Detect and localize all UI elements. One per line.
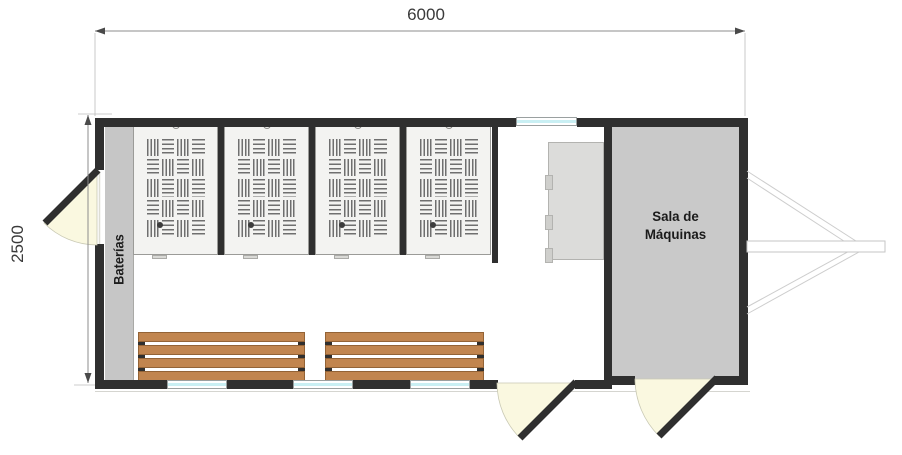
window-glass [294, 383, 352, 386]
hatch-block [283, 139, 295, 156]
hatch-block [253, 200, 265, 217]
hatch-block [147, 200, 159, 217]
hitch-bottom-member-line [747, 249, 853, 307]
hatch-block [329, 159, 341, 176]
bottom-door1-leaf [520, 382, 576, 438]
dimension-arrow-up [85, 115, 92, 125]
hatch-block [465, 179, 477, 196]
hatch-block [450, 200, 462, 217]
window [410, 380, 470, 389]
hatch-block [253, 220, 265, 237]
hatch-block [162, 179, 174, 196]
window [167, 380, 227, 389]
hatch-block [162, 220, 174, 237]
wall-bottom-segment [612, 376, 635, 385]
hatch-block [283, 179, 295, 196]
hatch-block [435, 159, 447, 176]
hatch-block [253, 139, 265, 156]
hatch-block [192, 179, 204, 196]
locker-unit [224, 124, 309, 255]
hatch-block [253, 159, 265, 176]
machine-room: Sala de Máquinas [612, 127, 739, 380]
locker-divider-wall [400, 124, 406, 255]
hatch-block [420, 159, 432, 176]
bench-slat [138, 358, 305, 368]
hatch-block [147, 179, 159, 196]
hatch-block [450, 179, 462, 196]
hatch-block [465, 220, 477, 237]
hatch-block [435, 200, 447, 217]
cabinet [548, 142, 604, 260]
hatch-block [162, 139, 174, 156]
hatch-block [268, 220, 280, 237]
hatch-block [359, 200, 371, 217]
locker-foot [243, 255, 258, 259]
left-door-leaf [45, 170, 98, 223]
dimension-width-label: 6000 [392, 5, 460, 25]
machine-room-label: Sala de Máquinas [615, 207, 736, 243]
hatch-block [359, 220, 371, 237]
hatch-block [450, 139, 462, 156]
hatch-block [374, 220, 386, 237]
window-glass [168, 383, 226, 386]
wall-bottom-segment [95, 380, 167, 389]
hatch-block [192, 139, 204, 156]
hatch-block [374, 179, 386, 196]
hatch-block [374, 139, 386, 156]
hatch-block [192, 220, 204, 237]
hatch-block [238, 159, 250, 176]
wall-left-lower-segment [95, 244, 104, 389]
hatch-block [283, 220, 295, 237]
hatch-block [465, 159, 477, 176]
locker-unit [406, 124, 491, 255]
hitch-bottom-member-line [747, 252, 859, 314]
locker-foot [152, 255, 167, 259]
left-door-swing [44, 170, 97, 245]
bench [138, 332, 305, 381]
machine-room-label-line1: Sala de [615, 207, 736, 225]
window [516, 117, 577, 126]
hatch-block [238, 179, 250, 196]
locker-knob [248, 222, 254, 228]
hatch-block [147, 159, 159, 176]
hatch-block [329, 139, 341, 156]
hatch-block [162, 200, 174, 217]
hatch-block [268, 179, 280, 196]
wall-bottom-segment [353, 380, 410, 389]
hatch-block [374, 159, 386, 176]
hatch-block [344, 159, 356, 176]
machine-room-label-line2: Máquinas [615, 225, 736, 243]
wall-bottom-segment [470, 380, 498, 389]
hatch-block [465, 139, 477, 156]
locker-unit [315, 124, 400, 255]
hatch-block [238, 200, 250, 217]
hatch-block [420, 200, 432, 217]
bottom-door1-swing [497, 383, 575, 438]
wall-bottom-segment [227, 380, 293, 389]
locker-knob [430, 222, 436, 228]
cabinet-hinge-notch [545, 248, 553, 263]
hatch-block [344, 200, 356, 217]
hitch-top-member-line [747, 171, 859, 243]
hatch-block [283, 200, 295, 217]
hatch-block [283, 159, 295, 176]
window [293, 380, 353, 389]
bottom-door2-swing [635, 379, 716, 436]
hatch-block [162, 159, 174, 176]
locker-divider-wall [309, 124, 315, 255]
hatch-block [359, 179, 371, 196]
hatch-block [177, 200, 189, 217]
hatch-block [450, 220, 462, 237]
hatch-block [238, 139, 250, 156]
bench-slat [325, 332, 484, 342]
locker-vent-pattern [145, 137, 206, 239]
hatch-block [450, 159, 462, 176]
locker-knob [339, 222, 345, 228]
locker-divider-wall [218, 124, 224, 255]
hatch-block [177, 139, 189, 156]
hatch-block [177, 179, 189, 196]
hitch-top-member-line [747, 178, 853, 247]
locker-end-wall [492, 127, 498, 263]
locker-vent-pattern [327, 137, 388, 239]
wall-bottom-corner-segment [714, 376, 748, 385]
hatch-block [268, 139, 280, 156]
hatch-block [192, 159, 204, 176]
locker-foot [425, 255, 440, 259]
hatch-block [253, 179, 265, 196]
machine-room-partition-wall [604, 127, 612, 380]
wall-left-upper-segment [95, 118, 104, 170]
hatch-block [329, 200, 341, 217]
hatch-block [268, 159, 280, 176]
hatch-block [344, 179, 356, 196]
hatch-block [435, 220, 447, 237]
hatch-block [420, 179, 432, 196]
bench-slat [138, 345, 305, 355]
window-glass [517, 120, 576, 123]
locker-vent-pattern [418, 137, 479, 239]
batteries-area: Baterías [105, 127, 134, 380]
bench [325, 332, 484, 381]
hatch-block [268, 200, 280, 217]
hatch-block [344, 139, 356, 156]
floor-plan-canvas: 6000 2500 Baterías Sala de Máquinas [0, 0, 902, 455]
dimension-arrow-left [95, 28, 105, 35]
bench-slat [138, 332, 305, 342]
wall-top-left-segment [95, 118, 516, 127]
hatch-block [177, 159, 189, 176]
hatch-block [465, 200, 477, 217]
hatch-block [147, 139, 159, 156]
hitch-drawbar [747, 241, 885, 252]
locker-vent-pattern [236, 137, 297, 239]
hatch-block [359, 139, 371, 156]
bench-slat [325, 345, 484, 355]
bottom-door2-leaf [659, 378, 717, 436]
cabinet-hinge-notch [545, 215, 553, 230]
hatch-block [192, 200, 204, 217]
wall-top-right-segment [577, 118, 748, 127]
hatch-block [435, 139, 447, 156]
dimension-arrow-down [85, 373, 92, 383]
dimension-height-label: 2500 [8, 214, 28, 274]
hatch-block [435, 179, 447, 196]
wall-right [739, 118, 748, 385]
wall-bottom-segment [575, 380, 612, 389]
hatch-block [374, 200, 386, 217]
hatch-block [359, 159, 371, 176]
locker-foot [334, 255, 349, 259]
cabinet-hinge-notch [545, 175, 553, 190]
hatch-block [344, 220, 356, 237]
locker-unit [133, 124, 218, 255]
window-glass [411, 383, 469, 386]
dimension-arrow-right [735, 28, 745, 35]
hatch-block [329, 179, 341, 196]
hatch-block [420, 139, 432, 156]
hatch-block [177, 220, 189, 237]
bench-slat [325, 358, 484, 368]
locker-knob [157, 222, 163, 228]
batteries-label: Baterías [112, 203, 127, 317]
